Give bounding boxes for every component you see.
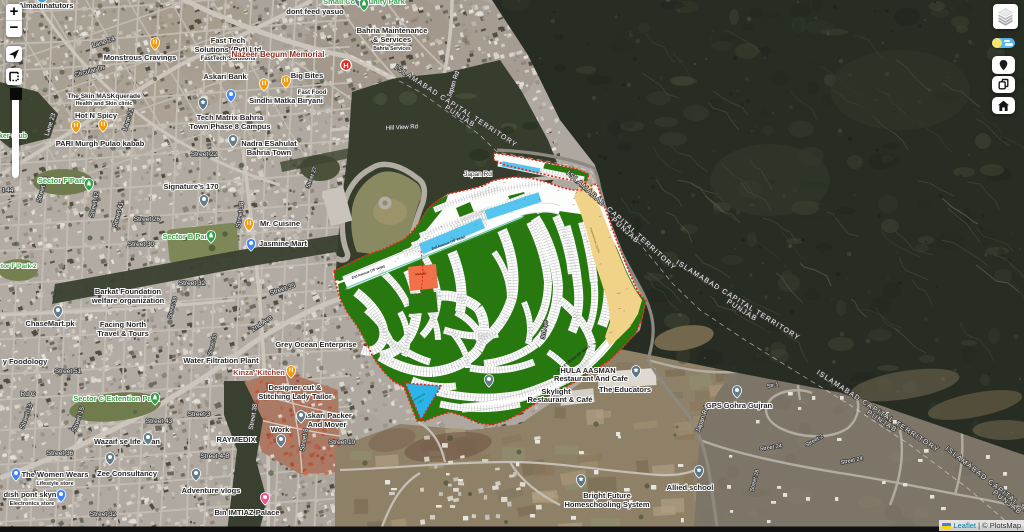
svg-text:Restaurant And Cafe: Restaurant And Cafe	[554, 374, 628, 383]
svg-text:The Skin MASKquerade: The Skin MASKquerade	[67, 93, 141, 100]
svg-text:H: H	[343, 61, 348, 70]
svg-text:Mr. Cuisine: Mr. Cuisine	[260, 219, 300, 228]
svg-text:Japan Rd: Japan Rd	[464, 171, 492, 178]
svg-text:Monstrous Cravings: Monstrous Cravings	[104, 53, 177, 62]
svg-text:Jasmine Mart: Jasmine Mart	[259, 239, 307, 248]
svg-text:Tech Matrix Bahria: Tech Matrix Bahria	[197, 113, 264, 122]
svg-text:Electronics store: Electronics store	[10, 501, 55, 507]
svg-text:Lifestyle store: Lifestyle store	[36, 481, 73, 487]
svg-text:RAYMEDIX: RAYMEDIX	[217, 435, 256, 444]
svg-text:t 44: t 44	[3, 187, 14, 194]
svg-text:Big Bites: Big Bites	[291, 71, 324, 80]
svg-text:dish pont skyns: dish pont skyns	[3, 490, 60, 499]
svg-text:Zee Consultancy: Zee Consultancy	[97, 469, 158, 478]
svg-text:Street 32: Street 32	[90, 511, 117, 518]
svg-text:Facing North: Facing North	[100, 320, 147, 329]
svg-text:Rd C: Rd C	[21, 391, 36, 398]
svg-text:The Educators: The Educators	[599, 385, 651, 394]
svg-text:Street 43: Street 43	[146, 418, 173, 425]
svg-text:Street 26: Street 26	[134, 216, 161, 223]
svg-text:Bright Future: Bright Future	[583, 491, 631, 500]
svg-text:Designer cut &: Designer cut &	[269, 383, 323, 392]
svg-text:y Foodology: y Foodology	[3, 357, 48, 366]
svg-text:Stitching Lady Tailor: Stitching Lady Tailor	[258, 392, 332, 401]
svg-text:Askari Bank: Askari Bank	[203, 72, 247, 81]
svg-text:& Services: & Services	[373, 35, 411, 44]
svg-text:Street 4-B: Street 4-B	[200, 453, 229, 460]
svg-text:Travel & Tours: Travel & Tours	[97, 329, 149, 338]
svg-text:Sector F Park: Sector F Park	[38, 176, 87, 185]
svg-text:MASJID: MASJID	[415, 272, 427, 277]
svg-text:Street 51: Street 51	[55, 368, 82, 375]
svg-text:Bahria Town: Bahria Town	[247, 148, 292, 157]
svg-text:Adventure vlogs: Adventure vlogs	[182, 486, 241, 495]
svg-text:Bahria Services: Bahria Services	[373, 46, 411, 52]
svg-text:Kinza ’Kitchen: Kinza ’Kitchen	[233, 368, 285, 377]
svg-text:Street 30: Street 30	[128, 241, 155, 248]
svg-text:Bin IMTIAZ Palace: Bin IMTIAZ Palace	[214, 508, 279, 517]
svg-text:Restaurant & Café: Restaurant & Café	[527, 395, 592, 404]
svg-text:Signature’s 170: Signature’s 170	[163, 182, 218, 191]
svg-text:Sector C Extention Park: Sector C Extention Park	[73, 394, 159, 403]
svg-text:Nazeer Begum Memorial: Nazeer Begum Memorial	[232, 50, 325, 59]
svg-text:The Women Wears: The Women Wears	[22, 470, 89, 479]
svg-text:GPS Gohra Gujran: GPS Gohra Gujran	[706, 401, 773, 410]
svg-text:Homeschooling System: Homeschooling System	[564, 500, 649, 509]
svg-text:Sindhi Matka Biryani: Sindhi Matka Biryani	[249, 96, 323, 105]
svg-text:Askari Packer: Askari Packer	[302, 411, 352, 420]
svg-text:Nadra ESahulat: Nadra ESahulat	[241, 139, 297, 148]
svg-text:Grey Ocean Enterprise: Grey Ocean Enterprise	[275, 340, 356, 349]
svg-text:Fast Tech: Fast Tech	[211, 36, 246, 45]
svg-text:Water Filtration Plant: Water Filtration Plant	[183, 356, 259, 365]
svg-text:Street 22: Street 22	[191, 151, 218, 158]
svg-text:Work: Work	[271, 425, 290, 434]
svg-text:Allied school: Allied school	[667, 483, 714, 492]
svg-text:Bahria Maintenance: Bahria Maintenance	[357, 26, 428, 35]
svg-text:Almadinatutors: Almadinatutors	[18, 1, 73, 10]
svg-text:welfare organization: welfare organization	[91, 296, 165, 305]
svg-text:And Mover: And Mover	[308, 420, 347, 429]
svg-text:Street 3: Street 3	[188, 411, 211, 418]
svg-text:Street 36: Street 36	[47, 450, 74, 457]
svg-text:Town Phase 8 Campus: Town Phase 8 Campus	[189, 122, 270, 131]
svg-text:PARI Murgh Pulao kabab: PARI Murgh Pulao kabab	[56, 139, 145, 148]
svg-text:Sector F Park 2: Sector F Park 2	[0, 263, 37, 270]
svg-text:Health and Skin clinic: Health and Skin clinic	[76, 101, 133, 107]
svg-text:dont feed yasuo: dont feed yasuo	[286, 7, 344, 16]
svg-text:ChaseMart.pk: ChaseMart.pk	[25, 319, 75, 328]
svg-text:Hot N Spicy: Hot N Spicy	[75, 111, 118, 120]
svg-text:Barkat Foundation: Barkat Foundation	[95, 287, 162, 296]
svg-text:Street 10: Street 10	[329, 439, 356, 446]
svg-text:Street 32: Street 32	[179, 280, 206, 287]
svg-text:Sector B Park: Sector B Park	[162, 232, 212, 241]
